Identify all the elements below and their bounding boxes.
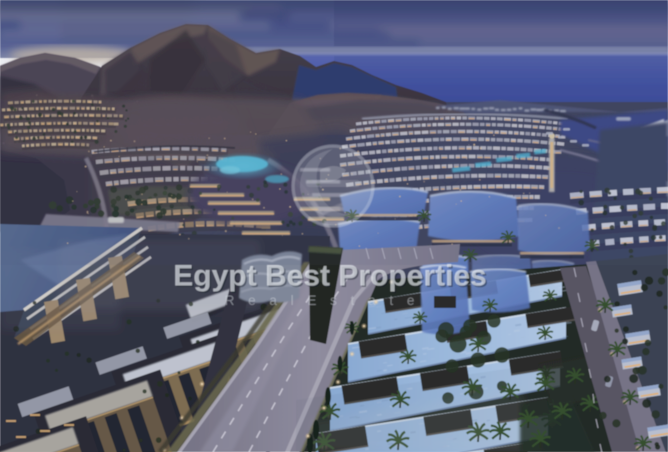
svg-text:R e a l E s t a t e: R e a l E s t a t e <box>225 293 420 308</box>
svg-text:Egypt Best Properties: Egypt Best Properties <box>173 260 486 293</box>
